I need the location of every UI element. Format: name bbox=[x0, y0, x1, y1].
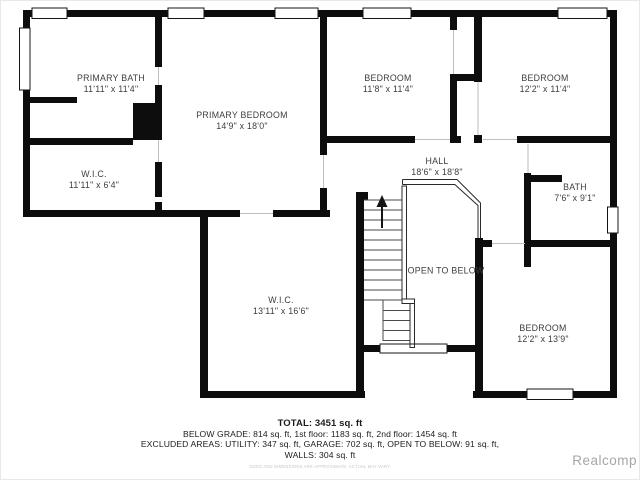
room-dimensions: 13'11" x 16'6" bbox=[253, 306, 309, 317]
wall-bath1-wic1-divider bbox=[28, 138, 133, 145]
wall-top bbox=[23, 10, 617, 17]
window-top-4 bbox=[363, 8, 411, 19]
room-name: OPEN TO BELOW bbox=[408, 266, 485, 277]
wall-wic2-bottom bbox=[200, 391, 365, 398]
floor-areas: BELOW GRADE: 814 sq. ft, 1st floor: 1183… bbox=[0, 429, 640, 439]
room-dimensions: 11'8" x 11'4" bbox=[363, 84, 413, 95]
window-right-bath bbox=[608, 207, 619, 233]
room-name: BEDROOM bbox=[517, 323, 569, 334]
railing-layer bbox=[402, 180, 481, 348]
window-top-1 bbox=[32, 8, 67, 19]
stairs-layer bbox=[364, 200, 410, 341]
wall-stair-cap bbox=[356, 192, 368, 200]
wall-bath2-left bbox=[524, 173, 531, 267]
window-bedroom3-bottom bbox=[527, 389, 573, 400]
room-label-bedroom-1: BEDROOM 11'8" x 11'4" bbox=[363, 73, 413, 95]
wall-primary-bedroom-right-stub bbox=[320, 188, 327, 216]
room-label-primary-bedroom: PRIMARY BEDROOM 14'9" x 18'0" bbox=[196, 110, 287, 132]
room-label-wic-1: W.I.C. 11'11" x 6'4" bbox=[69, 169, 119, 191]
interior-walls-layer bbox=[28, 17, 610, 267]
excluded-areas: EXCLUDED AREAS: UTILITY: 347 sq. ft, GAR… bbox=[0, 439, 640, 449]
wall-wic1-right-lower bbox=[155, 202, 162, 211]
total-area: TOTAL: 3451 sq. ft bbox=[0, 419, 640, 429]
room-label-wic-2: W.I.C. 13'11" x 16'6" bbox=[253, 295, 309, 317]
room-label-hall: HALL 18'6" x 18'8" bbox=[411, 156, 463, 178]
room-name: W.I.C. bbox=[253, 295, 309, 306]
wall-closet-a-foot bbox=[450, 136, 461, 143]
walls-area: WALLS: 304 sq. ft bbox=[0, 450, 640, 460]
realcomp-watermark: Realcomp bbox=[572, 453, 637, 468]
wall-closet-b bbox=[474, 17, 482, 82]
room-label-primary-bath: PRIMARY BATH 11'11" x 11'4" bbox=[77, 73, 145, 95]
room-dimensions: 12'2" x 11'4" bbox=[520, 84, 571, 95]
room-label-open-to-below: OPEN TO BELOW bbox=[408, 266, 485, 277]
area-summary: TOTAL: 3451 sq. ft BELOW GRADE: 814 sq. … bbox=[0, 419, 640, 469]
wall-closet-jog bbox=[450, 74, 482, 81]
chase-block bbox=[133, 103, 162, 140]
wall-bedroom1-bottom bbox=[327, 136, 415, 143]
room-dimensions: 14'9" x 18'0" bbox=[196, 121, 287, 132]
window-top-3 bbox=[275, 8, 318, 19]
wall-wic1-right-upper bbox=[155, 162, 162, 197]
wall-bath1-divider-upper bbox=[155, 17, 162, 67]
floorplan-canvas: PRIMARY BATH 11'11" x 11'4" W.I.C. 11'11… bbox=[0, 0, 640, 480]
wall-hall-bedroom3-divider bbox=[475, 240, 492, 247]
window-top-5 bbox=[558, 8, 607, 19]
window-left bbox=[20, 28, 31, 90]
room-label-bedroom-2: BEDROOM 12'2" x 11'4" bbox=[520, 73, 571, 95]
window-stair-bottom bbox=[380, 344, 447, 353]
room-name: BEDROOM bbox=[363, 73, 413, 84]
floorplan-drawing bbox=[0, 0, 640, 480]
room-dimensions: 12'2" x 13'9" bbox=[517, 334, 569, 345]
room-name: PRIMARY BATH bbox=[77, 73, 145, 84]
wall-bath2-top bbox=[527, 175, 562, 182]
wall-bath1-divider-stub bbox=[155, 85, 162, 105]
room-name: BEDROOM bbox=[520, 73, 571, 84]
room-dimensions: 11'11" x 6'4" bbox=[69, 180, 119, 191]
room-name: PRIMARY BEDROOM bbox=[196, 110, 287, 121]
room-dimensions: 18'6" x 18'8" bbox=[411, 167, 463, 178]
wall-wic2-left bbox=[200, 210, 208, 398]
room-label-bath: BATH 7'6" x 9'1" bbox=[554, 182, 595, 204]
wall-bath2-bottom bbox=[525, 240, 610, 247]
room-name: HALL bbox=[411, 156, 463, 167]
room-dimensions: 7'6" x 9'1" bbox=[554, 193, 595, 204]
wall-bedroom3-left bbox=[475, 238, 483, 398]
window-top-2 bbox=[168, 8, 204, 19]
wall-closet-a-top-stub bbox=[450, 17, 457, 30]
wall-bedroom2-bottom bbox=[517, 136, 610, 143]
wall-right bbox=[610, 10, 617, 398]
room-dimensions: 11'11" x 11'4" bbox=[77, 84, 145, 95]
room-label-bedroom-3: BEDROOM 12'2" x 13'9" bbox=[517, 323, 569, 345]
wall-primary-bedroom-right bbox=[320, 17, 327, 155]
wall-closet-b-stub bbox=[474, 135, 482, 143]
wall-closet-a bbox=[450, 74, 457, 136]
disclaimer-text: SIZES AND DIMENSIONS ARE APPROXIMATE, AC… bbox=[0, 464, 640, 469]
room-name: W.I.C. bbox=[69, 169, 119, 180]
room-name: BATH bbox=[554, 182, 595, 193]
wall-stair-left bbox=[356, 192, 364, 398]
wall-bath1-partition bbox=[29, 97, 77, 103]
